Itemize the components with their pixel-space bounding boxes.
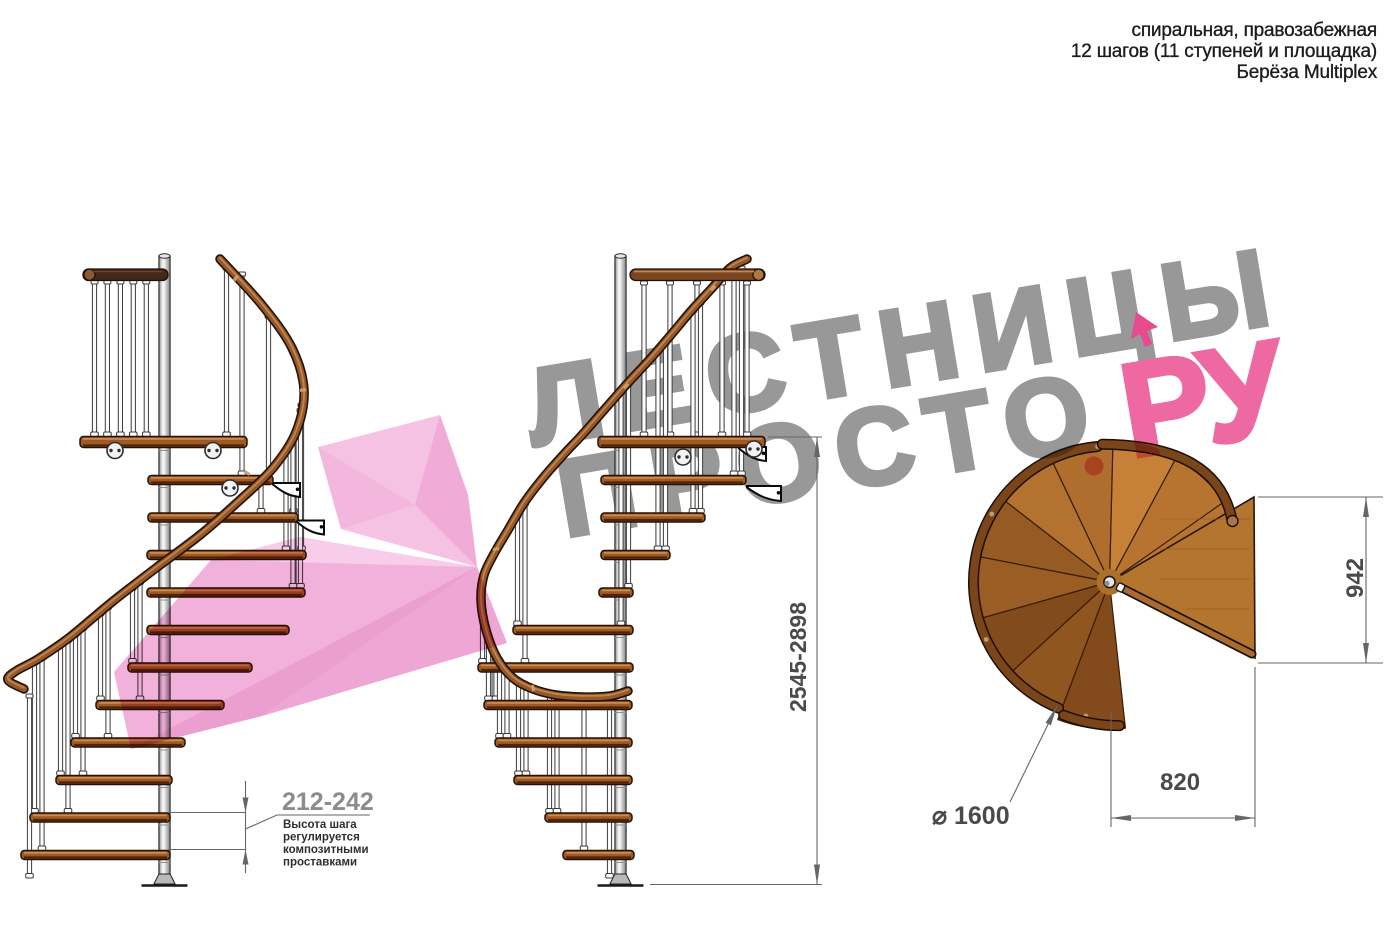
svg-text:12 шагов (11 ступеней и площад: 12 шагов (11 ступеней и площадка) (1071, 41, 1377, 62)
svg-text:композитными: композитными (283, 844, 369, 856)
svg-text:⌀ 1600: ⌀ 1600 (932, 802, 1010, 830)
svg-text:Берёза Multiplex: Берёза Multiplex (1237, 62, 1378, 83)
svg-text:Высота шага: Высота шага (283, 819, 357, 831)
svg-text:942: 942 (1342, 558, 1369, 598)
svg-text:проставками: проставками (283, 857, 357, 869)
svg-text:212-242: 212-242 (282, 788, 374, 816)
svg-text:820: 820 (1160, 769, 1200, 796)
svg-text:спиральная, правозабежная: спиральная, правозабежная (1132, 20, 1377, 41)
svg-text:2545-2898: 2545-2898 (785, 602, 811, 712)
svg-text:регулируется: регулируется (283, 832, 360, 844)
